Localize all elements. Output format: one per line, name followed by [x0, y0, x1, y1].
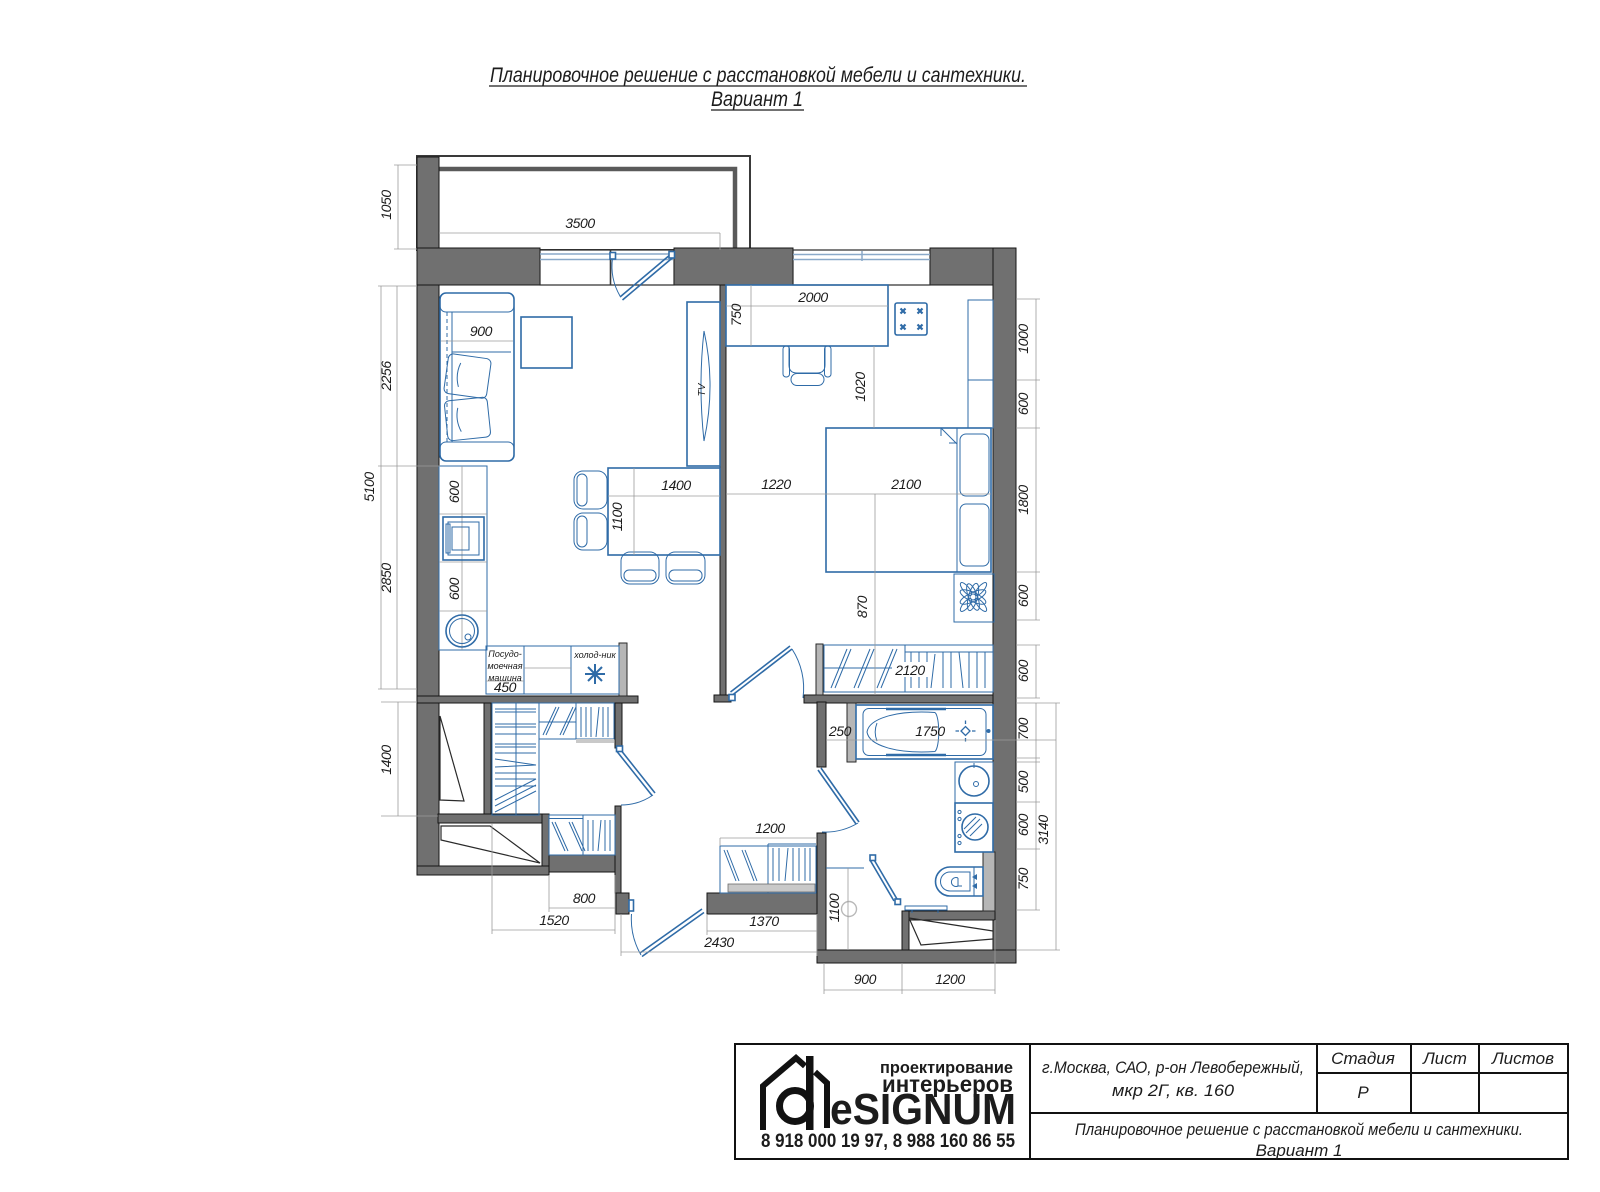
- svg-text:2256: 2256: [378, 361, 394, 392]
- svg-text:Посудо-: Посудо-: [488, 649, 521, 659]
- svg-text:Листов: Листов: [1491, 1049, 1554, 1068]
- svg-text:1370: 1370: [749, 913, 779, 929]
- svg-text:5100: 5100: [361, 472, 377, 502]
- svg-text:600: 600: [1015, 813, 1031, 836]
- svg-text:2100: 2100: [890, 476, 921, 492]
- svg-text:1200: 1200: [755, 820, 785, 836]
- svg-text:1100: 1100: [609, 502, 625, 531]
- svg-text:870: 870: [854, 595, 870, 618]
- svg-text:1220: 1220: [761, 476, 791, 492]
- svg-text:900: 900: [470, 323, 493, 339]
- svg-text:eSIGNUM: eSIGNUM: [830, 1085, 1016, 1134]
- svg-text:1000: 1000: [1015, 324, 1031, 354]
- svg-text:800: 800: [573, 890, 596, 906]
- svg-text:750: 750: [1015, 867, 1031, 890]
- svg-text:Лист: Лист: [1422, 1049, 1467, 1068]
- svg-text:3140: 3140: [1035, 815, 1051, 845]
- svg-text:2430: 2430: [703, 934, 734, 950]
- svg-text:2120: 2120: [894, 662, 925, 678]
- svg-text:250: 250: [828, 723, 852, 739]
- svg-text:1750: 1750: [915, 723, 945, 739]
- svg-text:450: 450: [494, 679, 517, 695]
- svg-text:8 918 000 19 97, 8 988 160 86: 8 918 000 19 97, 8 988 160 86 55: [761, 1131, 1015, 1152]
- svg-text:900: 900: [854, 971, 877, 987]
- svg-text:1520: 1520: [539, 912, 569, 928]
- svg-text:600: 600: [1015, 392, 1031, 415]
- svg-text:г.Москва, САО, р-он Левобережн: г.Москва, САО, р-он Левобережный,: [1042, 1058, 1304, 1077]
- svg-text:500: 500: [1015, 770, 1031, 793]
- svg-text:1800: 1800: [1015, 485, 1031, 515]
- svg-text:Планировочное решение с расста: Планировочное решение с расстановкой меб…: [1075, 1120, 1523, 1139]
- svg-text:600: 600: [1015, 584, 1031, 607]
- svg-text:1400: 1400: [661, 477, 691, 493]
- svg-text:1200: 1200: [935, 971, 965, 987]
- svg-text:1050: 1050: [378, 190, 394, 220]
- svg-text:Р: Р: [1357, 1083, 1369, 1102]
- svg-text:700: 700: [1015, 717, 1031, 740]
- svg-text:750: 750: [728, 303, 744, 326]
- svg-text:TV: TV: [697, 382, 708, 396]
- svg-text:2000: 2000: [797, 289, 828, 305]
- svg-text:Вариант 1: Вариант 1: [1256, 1141, 1343, 1160]
- svg-text:1400: 1400: [378, 745, 394, 775]
- svg-text:Вариант 1: Вариант 1: [711, 88, 803, 111]
- svg-text:600: 600: [1015, 659, 1031, 682]
- svg-text:600: 600: [446, 577, 462, 600]
- svg-text:1100: 1100: [826, 893, 842, 922]
- svg-text:Стадия: Стадия: [1331, 1049, 1395, 1068]
- svg-text:3500: 3500: [565, 215, 595, 231]
- svg-text:мкр 2Г, кв. 160: мкр 2Г, кв. 160: [1112, 1081, 1235, 1100]
- svg-text:1020: 1020: [852, 372, 868, 402]
- svg-text:600: 600: [446, 480, 462, 503]
- svg-text:моечная: моечная: [487, 661, 522, 671]
- svg-text:Планировочное решение с расста: Планировочное решение с расстановкой меб…: [490, 64, 1026, 87]
- svg-text:2850: 2850: [378, 563, 394, 594]
- svg-text:холод-ник: холод-ник: [573, 650, 616, 660]
